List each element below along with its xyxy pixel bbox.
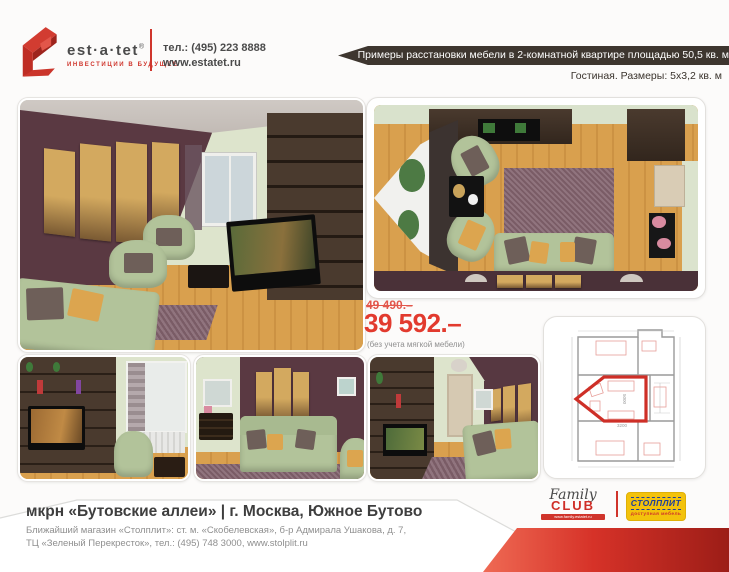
- coffee-table: [188, 265, 229, 288]
- painting-panel: [503, 385, 515, 426]
- wall-frame: [337, 377, 356, 397]
- window: [126, 361, 187, 433]
- header-divider: [150, 29, 152, 71]
- rug: [504, 168, 614, 239]
- curtain: [128, 363, 145, 431]
- door: [654, 165, 685, 208]
- pink-box: [204, 406, 212, 414]
- armchair-pillow: [156, 228, 182, 247]
- header-banner: Примеры расстановки мебели в 2-комнатной…: [338, 46, 729, 65]
- sofa-pillow: [67, 288, 104, 322]
- ceiling-lamp: [451, 359, 468, 371]
- wall-unit: [20, 357, 116, 473]
- logo-text: est·a·tet: [67, 42, 139, 59]
- book: [76, 380, 82, 394]
- sofa: [240, 416, 337, 472]
- contact-phone: тел.: (495) 223 8888: [163, 41, 266, 56]
- painting-panel: [293, 372, 308, 418]
- plate: [468, 194, 478, 205]
- tv-screen: [231, 219, 315, 275]
- painting-panel: [526, 275, 552, 288]
- coffee-table: [154, 457, 184, 477]
- contact-block: тел.: (495) 223 8888 www.estatet.ru: [163, 41, 266, 71]
- mirror: [474, 389, 493, 410]
- sofa-pillow: [267, 434, 283, 451]
- floorplan-drawing: 5000 3200: [550, 323, 699, 472]
- painting-panel: [116, 141, 147, 244]
- logo-tagline: ИНВЕСТИЦИИ В БУДУЩЕЕ: [67, 62, 179, 68]
- window: [202, 153, 256, 227]
- plant: [53, 362, 61, 372]
- paintings-stack: [497, 275, 581, 288]
- tv: [383, 424, 428, 456]
- plant: [515, 123, 526, 134]
- price-note: (без учета мягкой мебели): [367, 340, 465, 349]
- sofa: [462, 420, 540, 481]
- stolplit-logo: СТОЛПЛИТ доступная мебель: [626, 492, 686, 521]
- armchair-pillow: [459, 145, 489, 177]
- chair-pink: [652, 216, 666, 228]
- book: [37, 380, 43, 394]
- price: 39 592.–: [364, 308, 461, 339]
- tv: [226, 214, 321, 292]
- main-living-room-photo: [18, 98, 365, 352]
- tv-screen: [31, 409, 82, 442]
- painting-panel: [256, 372, 271, 418]
- photo-tv-unit: [18, 355, 190, 481]
- tv: [28, 406, 85, 450]
- highlighted-room-outline: [576, 377, 646, 421]
- mirror: [203, 379, 232, 407]
- plant: [376, 372, 382, 384]
- estatet-logo-icon: [20, 23, 64, 77]
- plant: [26, 362, 34, 372]
- armchair: [109, 240, 167, 288]
- coffee-table: [449, 176, 485, 217]
- sofa-pillow: [247, 429, 268, 450]
- sofa-pillow: [528, 240, 549, 264]
- painting-panel: [80, 143, 111, 241]
- side-table: [649, 213, 675, 258]
- brochure-page: est·a·tet® ИНВЕСТИЦИИ В БУДУЩЕЕ тел.: (4…: [0, 0, 729, 572]
- dimension-label: 5000: [622, 394, 627, 405]
- store-address-line1: Ближайший магазин «Столплит»: ст. м. «Ск…: [26, 524, 406, 537]
- logo-registered-mark: ®: [139, 44, 144, 51]
- sofa-pillow: [495, 428, 512, 449]
- cabinet-corner: [627, 109, 685, 161]
- store-address-line2: ТЦ «Зеленый Перекресток», тел.: (495) 74…: [26, 537, 308, 550]
- room-subtitle: Гостиная. Размеры: 5х3,2 кв. м: [571, 70, 722, 82]
- stolplit-tagline: доступная мебель: [627, 512, 685, 517]
- curtain: [185, 145, 202, 230]
- photo-sofa-wall: [194, 355, 366, 481]
- armchair: [114, 431, 153, 476]
- footer-logo-divider: [616, 491, 618, 517]
- sofa-pillow: [560, 242, 576, 262]
- contact-website: www.estatet.ru: [163, 56, 266, 71]
- dimension-label: 3200: [617, 423, 628, 428]
- floorplan-card: 5000 3200: [543, 316, 706, 479]
- sofa-pillow: [472, 430, 497, 456]
- sofa-pillow: [26, 287, 65, 320]
- footer-red-ribbon: [483, 528, 729, 572]
- chair-pink: [657, 238, 671, 250]
- armchair-pillow: [457, 219, 486, 251]
- sofa: [494, 233, 614, 274]
- sconce: [465, 274, 488, 282]
- logo-wordmark: est·a·tet® ИНВЕСТИЦИИ В БУДУЩЕЕ: [67, 42, 179, 68]
- family-club-logo: Family CLUB www.family.estatet.ru: [538, 487, 608, 520]
- chest-of-drawers: [199, 413, 233, 440]
- overhead-render: [374, 105, 698, 291]
- painting-panel: [44, 148, 75, 237]
- armchair: [340, 438, 366, 479]
- photo-room-length: [368, 355, 540, 481]
- wall-unit: [370, 357, 434, 479]
- overhead-render-card: [366, 97, 706, 299]
- painting-panel: [497, 275, 523, 288]
- tv-screen: [386, 428, 424, 450]
- armchair-pillow: [347, 450, 364, 467]
- sconce: [620, 274, 643, 282]
- stolplit-name: СТОЛПЛИТ: [631, 497, 682, 510]
- plant: [483, 123, 494, 134]
- painting-panel: [555, 275, 581, 288]
- armchair-pillow: [124, 253, 153, 273]
- book: [396, 394, 401, 409]
- project-title: мкрн «Бутовские аллеи» | г. Москва, Южно…: [26, 503, 422, 521]
- window-bar: [229, 156, 231, 224]
- fruit-plate: [453, 184, 465, 198]
- sofa-pillow: [295, 429, 317, 451]
- sofa-pillow: [504, 236, 530, 264]
- family-club-site: www.family.estatet.ru: [541, 514, 605, 520]
